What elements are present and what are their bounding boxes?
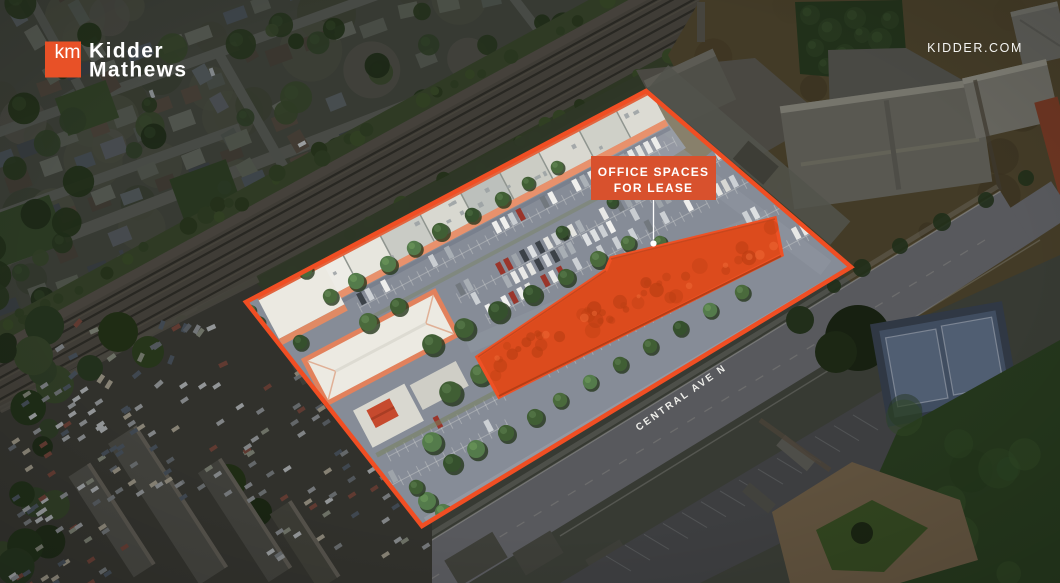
svg-text:OFFICE SPACES: OFFICE SPACES xyxy=(598,165,709,179)
svg-text:FOR LEASE: FOR LEASE xyxy=(614,181,693,195)
svg-text:KIDDER.COM: KIDDER.COM xyxy=(927,41,1023,55)
svg-text:km: km xyxy=(55,41,81,63)
svg-text:Mathews: Mathews xyxy=(89,59,188,82)
